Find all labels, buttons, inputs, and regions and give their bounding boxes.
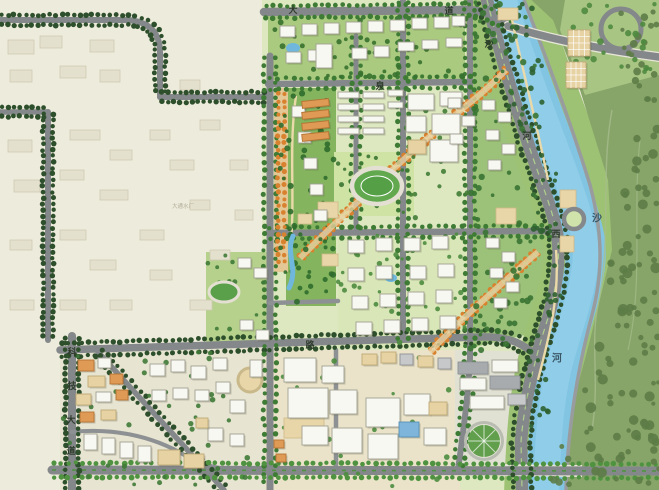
- oldtown-block: [100, 190, 128, 200]
- oldtown-block: [14, 180, 40, 192]
- oldtown-block: [200, 120, 220, 130]
- white-building: [374, 46, 389, 57]
- white-building: [356, 322, 372, 335]
- map-label: 路: [305, 339, 315, 350]
- white-building: [152, 390, 166, 401]
- white-building: [482, 100, 495, 110]
- map-label: 沙: [592, 213, 602, 225]
- pool: [286, 43, 300, 53]
- white-building: [238, 258, 251, 268]
- white-building: [406, 116, 426, 132]
- white-building: [506, 282, 519, 292]
- oldtown-block: [40, 36, 62, 48]
- white-building: [256, 330, 269, 340]
- white-building: [302, 24, 317, 35]
- white-building: [434, 17, 449, 28]
- white-building: [422, 40, 438, 49]
- white-building: [240, 320, 253, 330]
- oldtown-block: [150, 130, 170, 140]
- white-building: [138, 446, 151, 462]
- white-building: [502, 252, 515, 262]
- white-building: [191, 366, 206, 379]
- road: [268, 82, 470, 84]
- white-building: [363, 104, 384, 110]
- white-building: [352, 296, 368, 309]
- white-building: [470, 396, 504, 409]
- white-building: [102, 438, 115, 454]
- white-building: [446, 38, 462, 47]
- orange-building: [276, 454, 286, 462]
- white-building: [438, 264, 454, 277]
- white-building: [368, 434, 398, 459]
- white-building: [304, 158, 317, 169]
- dark-building: [490, 376, 520, 389]
- white-building: [436, 290, 452, 303]
- white-building: [410, 266, 426, 279]
- oldtown-block: [60, 230, 86, 240]
- white-building: [384, 320, 400, 333]
- plaza: [498, 8, 518, 20]
- road: [270, 301, 338, 303]
- white-building: [250, 360, 262, 377]
- white-building: [380, 294, 396, 307]
- map-label: 泉: [374, 80, 385, 91]
- pond: [289, 236, 293, 288]
- orange-building: [116, 390, 128, 400]
- white-building: [388, 90, 403, 96]
- white-building: [348, 240, 364, 253]
- white-building: [376, 238, 392, 251]
- plaza: [496, 208, 516, 224]
- white-building: [404, 394, 430, 415]
- white-building: [502, 144, 515, 154]
- oldtown-block: [60, 66, 86, 78]
- white-building: [195, 390, 209, 401]
- white-building: [286, 52, 301, 63]
- white-building: [363, 116, 384, 122]
- white-building: [432, 236, 448, 249]
- white-building: [363, 92, 384, 98]
- white-building: [173, 388, 188, 399]
- map-label: 大: [66, 414, 75, 425]
- white-building: [208, 428, 223, 441]
- plaza: [560, 236, 574, 252]
- white-building: [284, 358, 316, 382]
- white-building: [310, 184, 323, 195]
- mini-track: [209, 282, 239, 302]
- white-building: [338, 116, 359, 122]
- white-building: [376, 266, 392, 279]
- map-label: 科: [67, 346, 76, 357]
- orange-building: [78, 360, 94, 371]
- tan-building: [76, 394, 91, 405]
- oldtown-block: [150, 270, 172, 280]
- white-building: [96, 392, 111, 402]
- tan-building: [184, 454, 204, 468]
- oldtown-block: [10, 70, 32, 82]
- plaza: [560, 190, 576, 208]
- white-building: [432, 114, 460, 134]
- gray-building: [508, 394, 526, 405]
- white-building: [452, 16, 465, 26]
- tan-building: [362, 354, 377, 365]
- white-building: [494, 298, 507, 308]
- white-building: [280, 26, 295, 37]
- tan-building: [101, 410, 116, 420]
- white-building: [388, 102, 403, 108]
- oldtown-block: [100, 70, 120, 82]
- white-building: [498, 112, 511, 122]
- white-building: [408, 94, 434, 110]
- white-building: [84, 434, 97, 450]
- white-building: [213, 358, 227, 370]
- tan-building: [196, 418, 208, 428]
- white-building: [230, 400, 245, 413]
- orange-building: [274, 440, 284, 448]
- white-building: [171, 360, 185, 372]
- oldtown-block: [110, 300, 132, 310]
- oldtown-block: [110, 150, 132, 160]
- white-building: [348, 268, 364, 281]
- white-building: [330, 390, 357, 414]
- white-building: [338, 128, 359, 134]
- map-label: 沙: [484, 39, 493, 49]
- oldtown-block: [90, 40, 114, 52]
- oldtown-block: [170, 160, 194, 170]
- tan-building: [158, 450, 180, 465]
- blue-building: [399, 422, 419, 437]
- tan-building: [429, 402, 447, 415]
- white-building: [486, 130, 499, 140]
- map-label: 道: [444, 5, 453, 16]
- white-building: [460, 378, 486, 390]
- white-building: [338, 104, 359, 110]
- map-label: 道: [66, 445, 75, 456]
- tan-building: [88, 376, 105, 387]
- oldtown-block: [60, 300, 86, 310]
- map-label: 大通水厂: [172, 202, 195, 210]
- white-building: [368, 21, 383, 32]
- white-building: [366, 398, 400, 427]
- tan-building: [408, 140, 426, 154]
- white-building: [412, 18, 427, 29]
- white-building: [322, 366, 344, 383]
- map-label: 西: [551, 229, 560, 239]
- white-building: [338, 92, 359, 98]
- white-building: [288, 388, 328, 418]
- tan-building: [381, 352, 396, 363]
- map-label: 技: [67, 380, 77, 391]
- oldtown-block: [8, 140, 32, 152]
- map-label: 大: [288, 4, 297, 15]
- gray-building: [438, 358, 451, 369]
- map-canvas: 大道泉路沙河西科技大道沙河大通水厂: [0, 0, 659, 490]
- white-building: [352, 48, 367, 59]
- oldtown-block: [235, 210, 253, 220]
- oldtown-block: [10, 240, 32, 250]
- white-building: [448, 98, 461, 108]
- white-building: [424, 428, 446, 445]
- white-building: [390, 20, 405, 31]
- map-label: 河: [522, 130, 531, 141]
- oldtown-block: [140, 230, 164, 240]
- white-building: [492, 360, 518, 372]
- plaza: [322, 254, 338, 266]
- oldtown-block: [10, 300, 34, 310]
- master-plan-map: 大道泉路沙河西科技大道沙河大通水厂: [0, 0, 659, 490]
- white-building: [412, 318, 428, 331]
- white-building: [324, 23, 339, 34]
- oldtown-block: [8, 40, 34, 54]
- white-building: [440, 316, 456, 329]
- dark-building: [458, 362, 488, 374]
- white-building: [230, 434, 244, 446]
- oldtown-block: [180, 80, 200, 90]
- white-building: [314, 210, 327, 221]
- oldtown-block: [230, 160, 248, 170]
- white-building: [490, 268, 503, 278]
- white-building: [486, 238, 499, 248]
- white-building: [363, 128, 384, 134]
- oldtown-block: [70, 130, 100, 140]
- tan-building: [418, 356, 433, 367]
- white-building: [488, 160, 501, 170]
- white-building: [98, 358, 111, 368]
- map-label: 河: [552, 353, 562, 365]
- oldtown-block: [190, 300, 212, 310]
- white-building: [462, 116, 475, 126]
- white-building: [302, 426, 328, 445]
- white-building: [346, 22, 361, 33]
- white-building: [408, 292, 424, 305]
- white-building: [404, 238, 420, 251]
- white-building: [450, 134, 463, 144]
- plaza: [298, 214, 312, 224]
- gray-building: [400, 354, 413, 365]
- orange-building: [110, 374, 123, 384]
- white-building: [120, 442, 133, 458]
- white-building: [254, 268, 267, 278]
- white-building: [332, 428, 362, 453]
- white-building: [398, 42, 414, 51]
- oldtown-block: [60, 170, 84, 180]
- white-building: [150, 364, 165, 376]
- oldtown-block: [90, 260, 116, 270]
- roundabout: [564, 209, 584, 229]
- orange-building: [80, 412, 94, 422]
- white-building: [316, 44, 332, 68]
- white-building: [216, 382, 230, 393]
